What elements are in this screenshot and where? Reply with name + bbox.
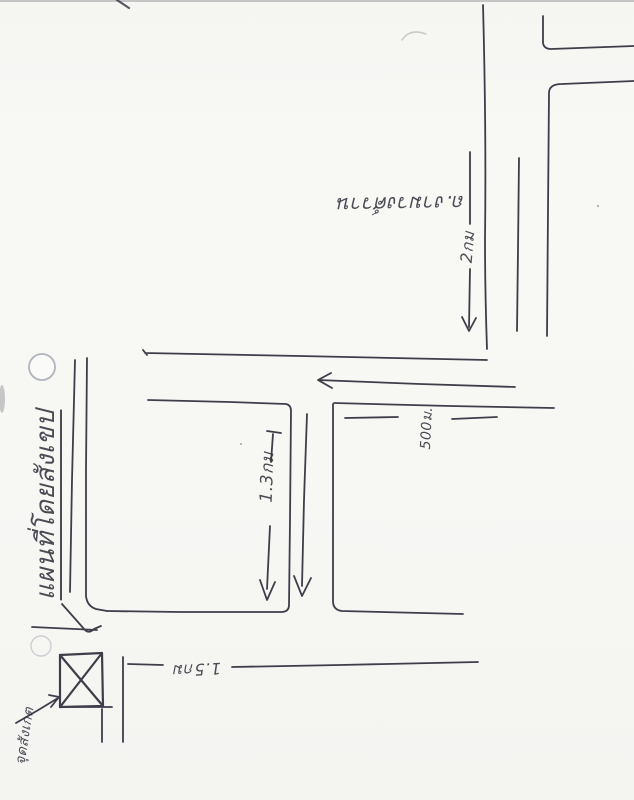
road-name-label: ถ.งามวงศ์วาน [346, 183, 457, 225]
right-road-center-line [517, 158, 519, 331]
map-drawing [0, 0, 634, 800]
bottom-road-bottom-line [232, 662, 478, 667]
hole-punch-bottom [31, 636, 51, 656]
distance-1-5km-label: 1.5กม [161, 652, 232, 686]
bottom-road-bottom-line-dash [128, 664, 163, 665]
scan-artifacts [0, 0, 634, 445]
distance-annotations [260, 417, 497, 600]
right-road-right-corner [547, 81, 634, 336]
right-road-top-corner [543, 16, 634, 49]
road-network [32, 5, 634, 742]
dust-speck [597, 205, 599, 207]
lower-road-right-line [333, 404, 463, 614]
faint-smudge [402, 32, 426, 40]
bottom-road-top-line-left [32, 627, 97, 630]
dust-speck [240, 443, 242, 445]
arrow-down-lower-road [294, 414, 311, 596]
middle-road-bottom-right-line [334, 403, 554, 408]
edge-smudge [0, 385, 5, 413]
right-road-left-line [483, 5, 487, 349]
map-title-label: แผนที่โดยสังเขป [22, 392, 68, 618]
left-road-right-line [86, 358, 107, 611]
distance-500m-label: 500ม. [414, 409, 440, 446]
hole-punch-top [29, 354, 55, 380]
distance-2km-label: 2กม [453, 225, 483, 269]
scanned-hand-drawn-map: แผนที่โดยสังเขป ถ.งามวงศ์วาน 2กม 500ม. 1… [0, 0, 634, 800]
left-road-left-line [70, 360, 75, 592]
destination-box-x-mark [60, 653, 103, 707]
distance-1-3km-label: 1.3กม [250, 429, 283, 525]
middle-road-top-line [143, 350, 487, 360]
arrow-left-middle-road [318, 373, 515, 388]
